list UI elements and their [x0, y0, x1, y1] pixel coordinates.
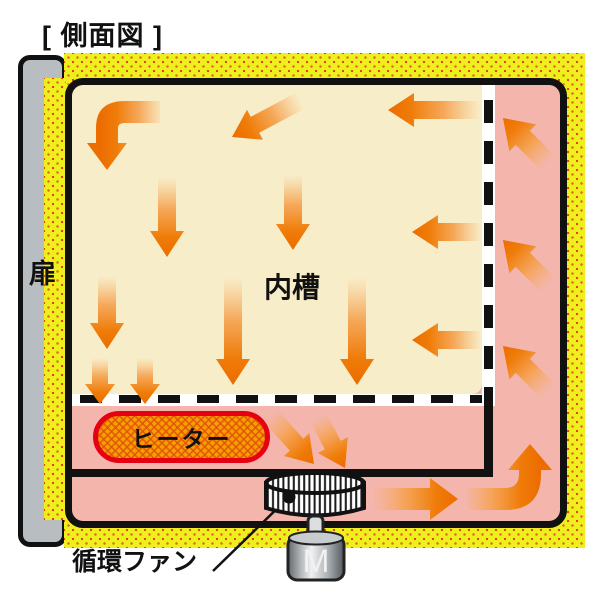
perforated-wall-right: [484, 100, 493, 394]
duct-wall-vertical: [484, 394, 493, 477]
perforated-wall-bottom: [80, 395, 482, 403]
circulation-fan-label: 循環ファン: [72, 542, 197, 578]
insulation-strip-door: [44, 78, 66, 520]
duct-wall-horizontal: [72, 469, 493, 477]
heater: ヒーター: [93, 411, 270, 463]
inner-chamber-label: 内槽: [242, 266, 342, 306]
door-label: 扉: [18, 252, 67, 291]
motor-label: M: [303, 543, 330, 579]
diagram-title: [ 側面図 ]: [42, 14, 163, 53]
heater-label: ヒーター: [132, 420, 232, 454]
inner-chamber: [72, 85, 482, 394]
diagram-canvas: ヒーター: [0, 0, 600, 600]
